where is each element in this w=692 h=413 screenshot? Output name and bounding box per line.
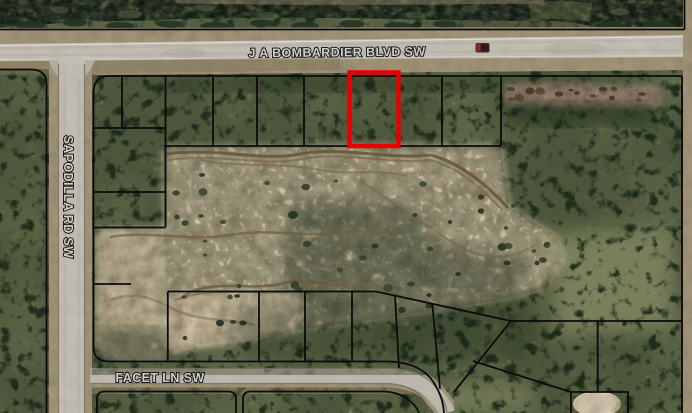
svg-text:J A BOMBARDIER BLVD SW: J A BOMBARDIER BLVD SW [248, 45, 425, 61]
svg-text:SAPODILLA RD SW: SAPODILLA RD SW [61, 136, 75, 259]
svg-text:FACET LN SW: FACET LN SW [115, 371, 204, 385]
